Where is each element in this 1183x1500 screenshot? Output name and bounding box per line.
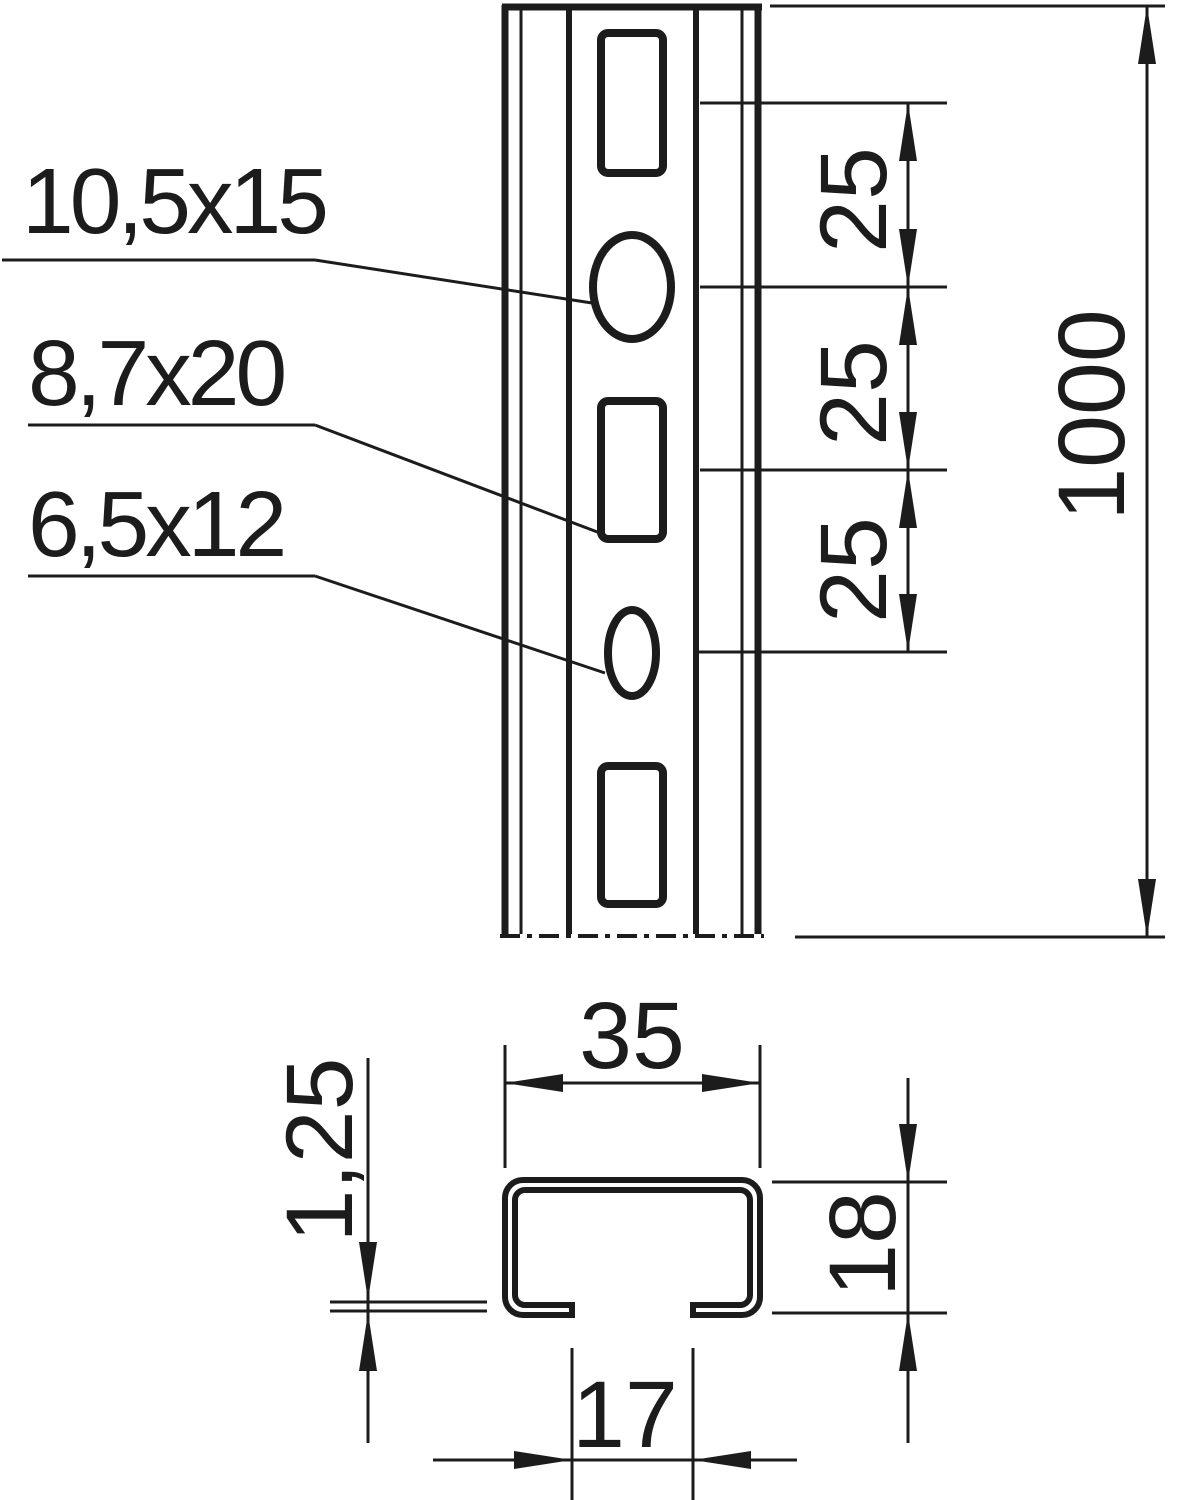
length-dimension-label: 1000 (1039, 309, 1145, 520)
mounting-slot-top (601, 33, 663, 173)
arrowhead-down (359, 1242, 377, 1300)
leader-line (315, 576, 605, 673)
arrowhead-down (899, 1124, 917, 1182)
width-dimension-label: 35 (579, 983, 685, 1089)
arrowhead-right (514, 1451, 572, 1469)
thickness-dimension: 1,25 (267, 1058, 487, 1443)
leader-line (315, 260, 592, 303)
hole-callouts: 10,5x15 8,7x20 6,5x12 (2, 149, 605, 673)
hole-size-label: 8,7x20 (28, 321, 285, 425)
mounting-slot-bottom (601, 766, 663, 904)
mounting-slot-middle (601, 401, 663, 539)
arrowhead-up (1138, 6, 1156, 64)
front-view: 10,5x15 8,7x20 6,5x12 25 25 25 (2, 5, 1165, 937)
pitch-dimension-label: 25 (801, 517, 907, 623)
opening-dimension-label: 17 (572, 1362, 678, 1468)
pitch-dimension: 25 25 25 (695, 103, 947, 652)
thickness-dimension-label: 1,25 (267, 1058, 373, 1243)
pitch-dimension-label: 25 (801, 147, 907, 253)
width-dimension: 35 (505, 983, 760, 1168)
arrowhead-up (359, 1313, 377, 1371)
oval-hole-small (608, 610, 656, 696)
arrowhead-up (899, 1313, 917, 1371)
profile-rail-drawing: 10,5x15 8,7x20 6,5x12 25 25 25 (0, 0, 1183, 1500)
rail-holes (593, 33, 671, 904)
arrowhead-left (693, 1451, 751, 1469)
leader-line (315, 425, 600, 533)
opening-dimension: 17 (433, 1348, 797, 1500)
c-profile-cross-section (505, 1180, 760, 1315)
hole-size-label: 6,5x12 (28, 472, 284, 576)
height-dimension: 18 (772, 1078, 947, 1443)
arrowhead-left (505, 1074, 563, 1092)
technical-drawing-page: 10,5x15 8,7x20 6,5x12 25 25 25 (0, 0, 1183, 1500)
height-dimension-label: 18 (810, 1191, 916, 1297)
arrowhead-up (899, 287, 917, 345)
arrowhead-down (1138, 879, 1156, 937)
arrowhead-right (702, 1074, 760, 1092)
hole-size-label: 10,5x15 (22, 149, 325, 253)
section-view: 35 1,25 18 17 (267, 983, 947, 1500)
pitch-dimension-label: 25 (801, 340, 907, 446)
oval-hole-large (593, 235, 671, 339)
